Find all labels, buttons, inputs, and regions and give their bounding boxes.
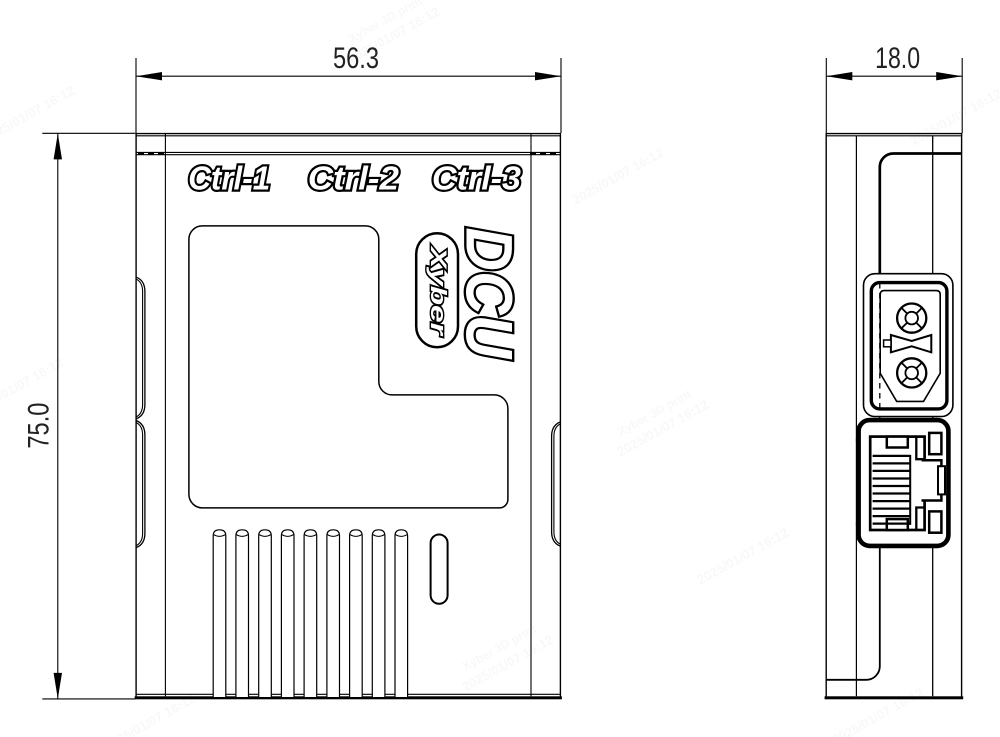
svg-text:56.3: 56.3 [333,42,379,75]
svg-text:2025/01/07 16:12: 2025/01/07 16:12 [908,86,1000,149]
svg-text:Ctrl-1: Ctrl-1 [188,160,270,197]
svg-text:75.0: 75.0 [23,403,56,449]
svg-text:Ctrl-3: Ctrl-3 [432,160,521,197]
svg-text:2025/01/07 16:12: 2025/01/07 16:12 [570,145,666,208]
svg-text:Ctrl-2: Ctrl-2 [308,160,400,197]
svg-text:18.0: 18.0 [875,42,920,75]
svg-text:2025/01/07 16:12: 2025/01/07 16:12 [0,83,77,146]
svg-text:DCU: DCU [453,227,527,360]
svg-text:Xyber: Xyber [426,244,451,337]
svg-text:2025/01/07 16:12: 2025/01/07 16:12 [830,685,926,737]
svg-text:2025/01/07 16:12: 2025/01/07 16:12 [695,525,791,588]
